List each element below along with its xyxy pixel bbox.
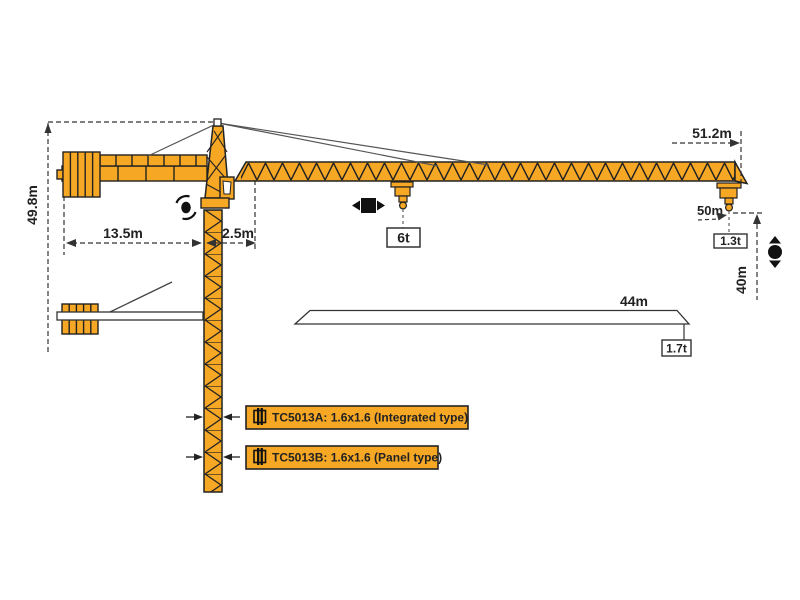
svg-text:TC5013B: 1.6x1.6 (Panel type: TC5013B: 1.6x1.6 (Panel type) [272,451,442,465]
svg-text:44m: 44m [620,293,648,309]
load-box-6t: 6t [387,228,420,247]
svg-text:TC5013A: 1.6x1.6 (Integrated: TC5013A: 1.6x1.6 (Integrated type) [272,411,468,425]
svg-text:13.5m: 13.5m [103,225,143,241]
hook-mid [400,202,407,209]
hook-tip [726,204,733,211]
model-label-b: TC5013B: 1.6x1.6 (Panel type) [246,446,442,469]
dimension-counter-jib: 13.5m [64,196,202,255]
dimension-hook-drop: 40m [733,213,763,300]
svg-text:51.2m: 51.2m [692,125,732,141]
svg-text:40m: 40m [733,266,749,294]
ground-jib: 44m [295,293,689,340]
arrowhead-up [45,123,52,133]
load-box-1-3t: 1.3t [714,234,747,248]
svg-text:2.5m: 2.5m [222,225,254,241]
model-label-a: TC5013A: 1.6x1.6 (Integrated type) [246,406,468,429]
diagram-canvas: 49.8m [0,0,800,600]
trolley-travel-icon [352,198,385,213]
ground-tie-bar [57,312,203,320]
slewing-icon [177,196,196,219]
hoisting-icon [768,236,782,268]
dimension-trolley-travel: 50m [697,203,727,221]
apex-pin [214,119,221,126]
slewing-platform [201,198,229,208]
counterweight-block [57,152,100,197]
main-jib [235,162,747,184]
label-total-height: 49.8m [24,185,40,225]
operator-cab [220,177,234,199]
svg-text:1.7t: 1.7t [666,342,687,356]
load-box-1-7t: 1.7t [662,340,691,356]
tower-mast [204,210,222,492]
svg-text:6t: 6t [397,230,410,246]
crane-dimension-diagram: 49.8m [0,0,800,600]
ground-tie-rod [110,282,172,312]
svg-text:1.3t: 1.3t [720,234,741,248]
trolley-mid [391,182,413,209]
